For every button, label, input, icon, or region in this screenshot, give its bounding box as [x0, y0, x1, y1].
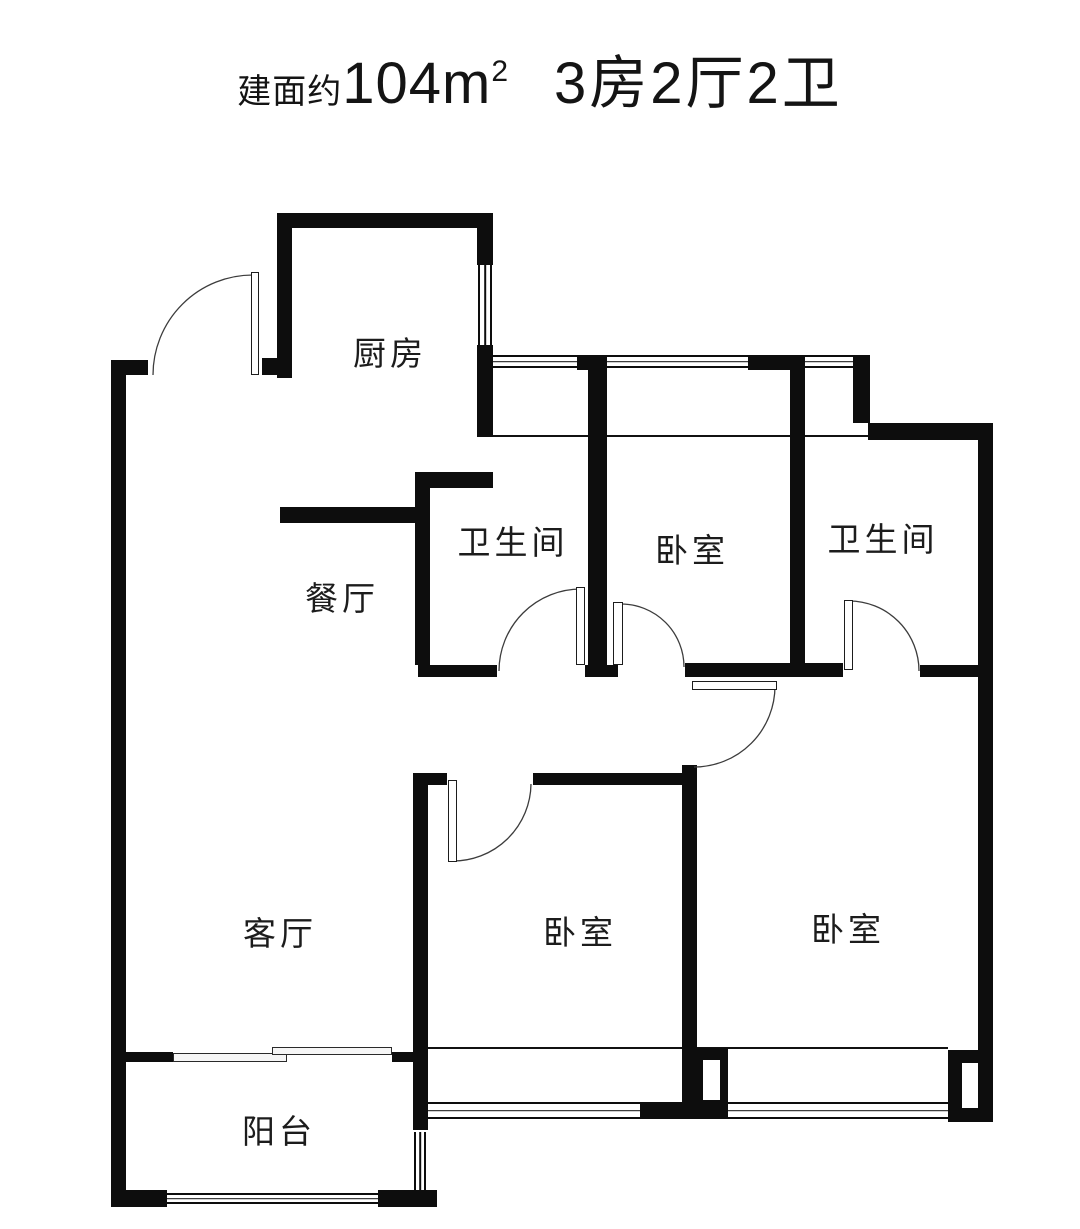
- north-east-wall: [868, 423, 993, 440]
- bath1-door-leaf: [576, 587, 585, 665]
- room-label-bedroom-south-east: 卧室: [811, 903, 885, 951]
- balcony-divider-left: [120, 1052, 173, 1062]
- kitchen-left-wall: [277, 213, 292, 378]
- balcony-sliding-panel-right: [272, 1047, 392, 1055]
- balcony-south-window: [167, 1193, 378, 1204]
- entry-door-leaf: [251, 272, 259, 375]
- bath1-bottom-wall: [418, 665, 497, 677]
- left-outer-wall: [111, 360, 126, 1207]
- balcony-bottom-left-wall: [111, 1190, 167, 1207]
- kitchen-bottom-wall: [280, 507, 417, 523]
- balcony-right-foot: [400, 1192, 430, 1207]
- room-label-bathroom-north-west: 卫生间: [458, 516, 569, 564]
- bed3-top-wall: [533, 773, 685, 785]
- entry-right-stub: [262, 358, 292, 375]
- kitchen-right-wall-upper: [477, 213, 493, 265]
- bath1-door-arc: [499, 589, 581, 671]
- right-outer-wall: [978, 423, 993, 1122]
- room-label-kitchen: 厨房: [353, 327, 427, 375]
- bath2-door-arc: [849, 601, 919, 671]
- bed1-bottom-wall: [685, 663, 843, 677]
- balcony-east-window: [414, 1132, 426, 1192]
- south-center-pier-notch: [703, 1060, 720, 1100]
- room-label-dining: 餐厅: [305, 572, 379, 620]
- room-label-bedroom-north: 卧室: [655, 524, 729, 572]
- room-label-living-room: 客厅: [243, 907, 317, 955]
- north-sill-line: [480, 435, 868, 437]
- floorplan-canvas: 厨房餐厅卫生间卧室卫生间客厅卧室卧室阳台: [0, 0, 1080, 1229]
- kitchen-top-wall: [277, 213, 493, 228]
- hall-wall-a: [588, 358, 607, 677]
- bath2-bottom-wall-right: [920, 665, 980, 677]
- bed3-left-wall: [413, 773, 428, 1130]
- bed2-door-leaf: [692, 681, 777, 690]
- room-label-balcony: 阳台: [242, 1105, 316, 1153]
- balcony-divider-right: [392, 1052, 413, 1062]
- bed2-door-arc: [694, 686, 775, 767]
- bed1-door-arc: [621, 604, 684, 667]
- entry-door-arc: [153, 275, 253, 375]
- bath2-door-leaf: [844, 600, 853, 670]
- bed1-door-leaf: [613, 602, 623, 665]
- south-east-corner-notch: [962, 1063, 978, 1108]
- balcony-sliding-panel-left: [173, 1053, 287, 1062]
- bed3-door-arc: [452, 784, 531, 861]
- room-label-bathroom-north-east: 卫生间: [828, 513, 939, 561]
- north-east-pier: [853, 355, 870, 423]
- kitchen-right-wall-lower: [477, 345, 493, 437]
- entry-left-stub: [111, 360, 148, 375]
- room-label-bedroom-south-middle: 卧室: [543, 906, 617, 954]
- hall-wall-a-foot: [585, 665, 618, 677]
- bed2-left-wall: [682, 765, 697, 1103]
- bath1-left-wall: [415, 472, 430, 665]
- bed3-door-leaf: [448, 780, 457, 862]
- door-arcs-layer: [0, 0, 1080, 1229]
- hall-wall-b: [790, 367, 805, 677]
- south-window-mid-block: [640, 1102, 728, 1118]
- kitchen-east-window: [478, 265, 492, 345]
